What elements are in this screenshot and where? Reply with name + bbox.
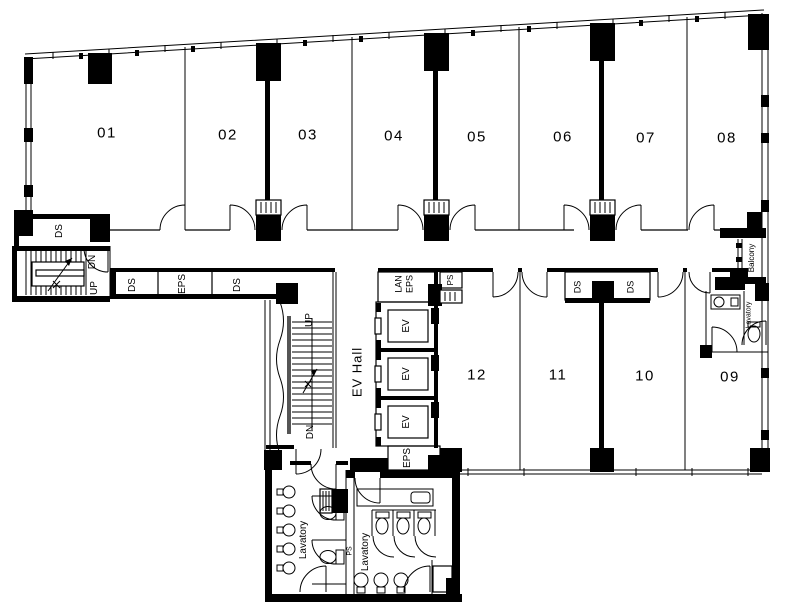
label-ev-1: EV (402, 319, 412, 332)
curtain-wall-top (25, 10, 764, 59)
label-ds-closet-3: DS (574, 281, 583, 294)
label-dn-left-stairs: DN (88, 255, 98, 269)
room-label-02: 02 (218, 128, 238, 143)
label-lavatory-small: Lavatory (746, 302, 753, 329)
floor-plan: 01 02 03 04 05 06 07 08 12 11 10 09 DS D… (0, 0, 787, 615)
label-ps-1: PS (447, 275, 455, 286)
room-label-09: 09 (720, 370, 740, 385)
label-lavatory-right: Lavatory (361, 533, 371, 571)
label-ds-closet-4: DS (627, 281, 636, 294)
label-ev-3: EV (402, 415, 412, 428)
label-up-center-stairs: UP (305, 313, 315, 327)
label-ds-closet-2: DS (233, 278, 243, 292)
label-ps-2: PS (347, 546, 354, 555)
label-ev-2: EV (402, 367, 412, 380)
exterior-wall-right (750, 13, 770, 472)
room-label-08: 08 (717, 131, 737, 146)
label-ds-closet-1: DS (128, 278, 138, 292)
floorplan-linework (0, 0, 787, 615)
room-label-05: 05 (467, 130, 487, 145)
label-ev-hall: EV Hall (351, 347, 364, 397)
label-lavatory-left: Lavatory (299, 521, 309, 559)
room-label-10: 10 (635, 369, 655, 384)
stairs-center (265, 272, 336, 474)
label-dn-center-stairs: DN (306, 425, 316, 439)
label-lan: LAN (395, 275, 404, 293)
room-label-01: 01 (97, 126, 117, 141)
room-label-11: 11 (549, 368, 568, 383)
label-up-left-stairs: UP (90, 281, 100, 295)
label-eps-closet-2: EPS (403, 448, 413, 468)
label-lan-eps: EPS (406, 275, 415, 293)
label-ds-room: DS (55, 224, 65, 238)
top-room-partitions (88, 14, 768, 241)
closet-row-left (110, 272, 298, 304)
room-label-12: 12 (467, 368, 487, 383)
room-label-03: 03 (298, 128, 318, 143)
room-label-04: 04 (384, 129, 404, 144)
label-balcony: Balcony (748, 244, 756, 272)
exterior-wall-left (14, 57, 33, 236)
label-eps-closet-1: EPS (178, 274, 188, 294)
room-label-06: 06 (553, 130, 573, 145)
room-label-07: 07 (636, 131, 656, 146)
